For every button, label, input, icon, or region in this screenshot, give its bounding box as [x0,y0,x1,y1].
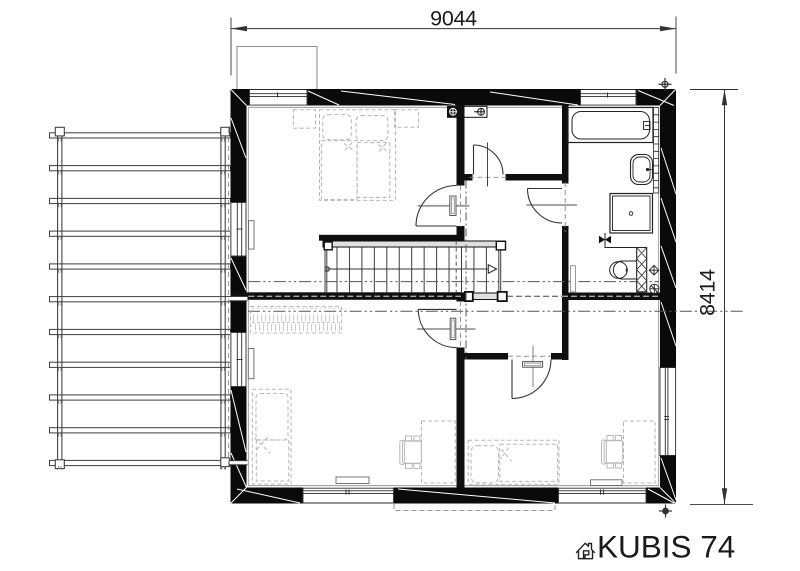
svg-text:KUBIS 74: KUBIS 74 [597,529,735,565]
svg-text:8414: 8414 [696,269,720,316]
svg-text:9044: 9044 [430,6,477,30]
